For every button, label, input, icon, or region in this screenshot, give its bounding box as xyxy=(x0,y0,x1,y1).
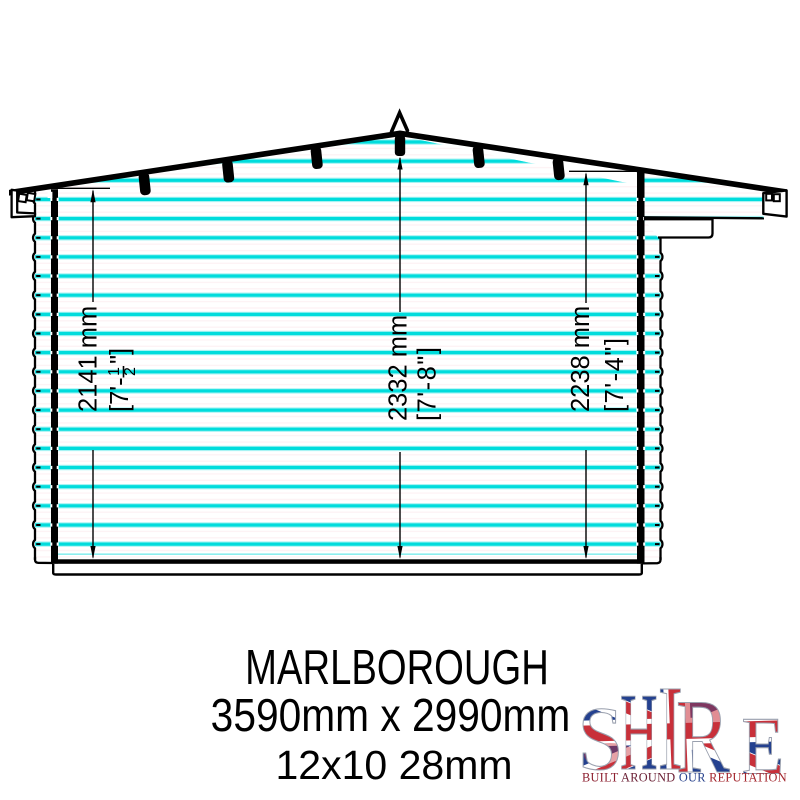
svg-text:"]: "] xyxy=(106,348,134,364)
svg-text:MARLBOROUGH: MARLBOROUGH xyxy=(245,641,549,696)
svg-text:[7'-: [7'- xyxy=(106,377,134,412)
svg-text:BUILT AROUND OUR REPUTATION: BUILT AROUND OUR REPUTATION xyxy=(582,771,787,785)
svg-text:2: 2 xyxy=(122,367,139,376)
svg-text:2332 mm: 2332 mm xyxy=(385,315,413,421)
svg-text:2238 mm: 2238 mm xyxy=(567,306,595,412)
svg-text:[7'-8"]: [7'-8"] xyxy=(414,346,442,421)
svg-text:12x10 28mm: 12x10 28mm xyxy=(275,742,512,788)
svg-text:1: 1 xyxy=(106,367,123,376)
svg-text:[7'-4"]: [7'-4"] xyxy=(601,337,629,412)
svg-text:2141 mm: 2141 mm xyxy=(75,306,103,412)
svg-text:3590mm x 2990mm: 3590mm x 2990mm xyxy=(211,691,571,742)
